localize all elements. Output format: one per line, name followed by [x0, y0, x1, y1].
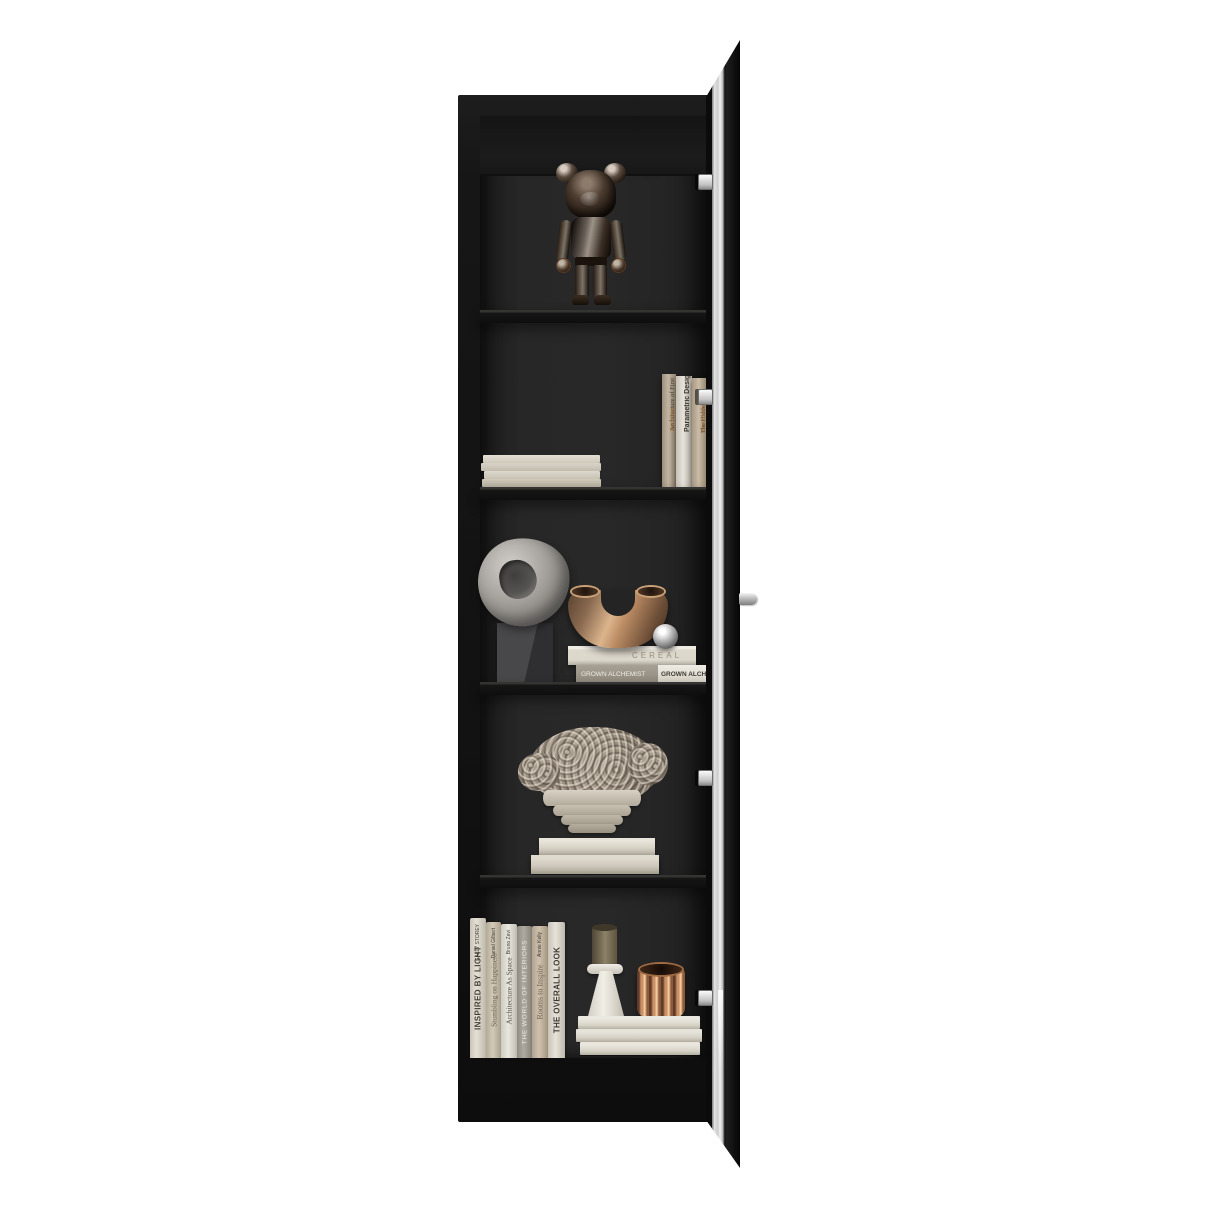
book-stumbling-on-happiness: Daniel Gilbert Stumbling on Happiness — [486, 922, 501, 1058]
fluted-copper-vessel — [637, 968, 685, 1017]
bearbrick-head — [566, 170, 616, 218]
vessel-mouth — [640, 964, 682, 975]
door-glass-highlight — [718, 990, 723, 1070]
book-the-overall-look: THE OVERALL LOOK — [548, 922, 565, 1058]
bearbrick-foot — [572, 295, 589, 305]
door-hinge — [698, 174, 713, 190]
bouquet-tuft — [628, 743, 668, 785]
book-row: SALLY STOREY INSPIRED BY LIGHT Daniel Gi… — [470, 918, 566, 1058]
door-hinge — [698, 389, 713, 405]
bearbrick-paw — [557, 259, 570, 272]
vase-opening — [572, 587, 598, 596]
ring-sculpture-hole — [497, 558, 539, 601]
bearbrick-leg — [593, 265, 607, 297]
bearbrick-paw — [612, 259, 625, 272]
bearbrick-figure — [549, 160, 633, 310]
stacked-board — [576, 1029, 702, 1042]
bearbrick-foot — [594, 295, 611, 305]
bearbrick-leg — [575, 265, 589, 297]
book-architecture-as-space: Bruno Zevi Architecture As Space — [501, 924, 517, 1058]
shelf-board — [480, 682, 706, 695]
bearbrick-arm — [555, 219, 572, 262]
door-hinge — [698, 990, 713, 1006]
book-inspired-by-light: SALLY STOREY INSPIRED BY LIGHT — [470, 918, 486, 1058]
candle — [592, 926, 617, 968]
book-parametric-design: Parametric Design — [676, 376, 692, 488]
stacked-book — [481, 463, 601, 471]
bearbrick-muzzle — [580, 192, 602, 206]
stacked-book — [483, 455, 600, 463]
shelf-board — [480, 310, 706, 323]
bearbrick-torso — [571, 217, 611, 259]
stacked-board — [580, 1042, 700, 1055]
door-hinge — [698, 770, 713, 786]
door-knob — [739, 593, 757, 605]
stacked-board — [578, 1016, 700, 1029]
stacked-book — [482, 479, 601, 487]
stacked-book — [484, 471, 600, 479]
bearbrick-arm — [609, 219, 626, 262]
stacked-book — [531, 855, 659, 874]
cube-pedestal — [497, 623, 553, 683]
candle-top — [592, 924, 617, 931]
planter-tier — [543, 790, 641, 806]
book-architecture-of-first-societies: Architecture of First Societies — [662, 374, 676, 488]
chrome-sphere — [653, 624, 678, 649]
book-the-world-of-interiors: THE WORLD OF INTERIORS — [517, 926, 532, 1058]
book-rooms-to-inspire: Annie Kelly Rooms to Inspire — [532, 926, 548, 1058]
product-photo: Architecture of First Societies Parametr… — [0, 0, 1214, 1214]
bouquet-tuft — [518, 753, 560, 791]
book-cereal: CEREAL — [568, 646, 696, 665]
vase-notch — [601, 590, 635, 616]
board-stack — [576, 1016, 702, 1058]
planter-tier — [568, 824, 616, 833]
stacked-book — [539, 838, 655, 855]
horizontal-book-stack — [481, 455, 602, 488]
shelf-board — [480, 487, 706, 500]
vase-opening — [638, 587, 664, 596]
shelf-board — [480, 875, 706, 888]
